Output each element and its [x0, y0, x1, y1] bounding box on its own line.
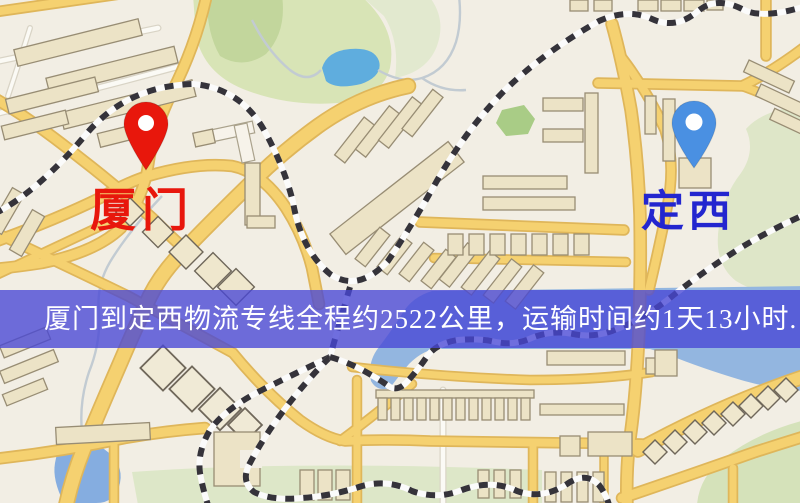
route-info-text: 厦门到定西物流专线全程约2522公里，运输时间约1天13小时.: [44, 304, 797, 334]
destination-pin-hole: [686, 114, 703, 131]
origin-label: 厦门: [90, 174, 194, 240]
destination-label: 定西: [641, 177, 735, 239]
map-canvas[interactable]: [0, 0, 800, 503]
origin-pin-hole: [138, 115, 154, 131]
route-info-banner: 厦门到定西物流专线全程约2522公里，运输时间约1天13小时.: [0, 290, 800, 348]
map-screenshot: 厦门 定西 厦门到定西物流专线全程约2522公里，运输时间约1天13小时.: [0, 0, 800, 503]
